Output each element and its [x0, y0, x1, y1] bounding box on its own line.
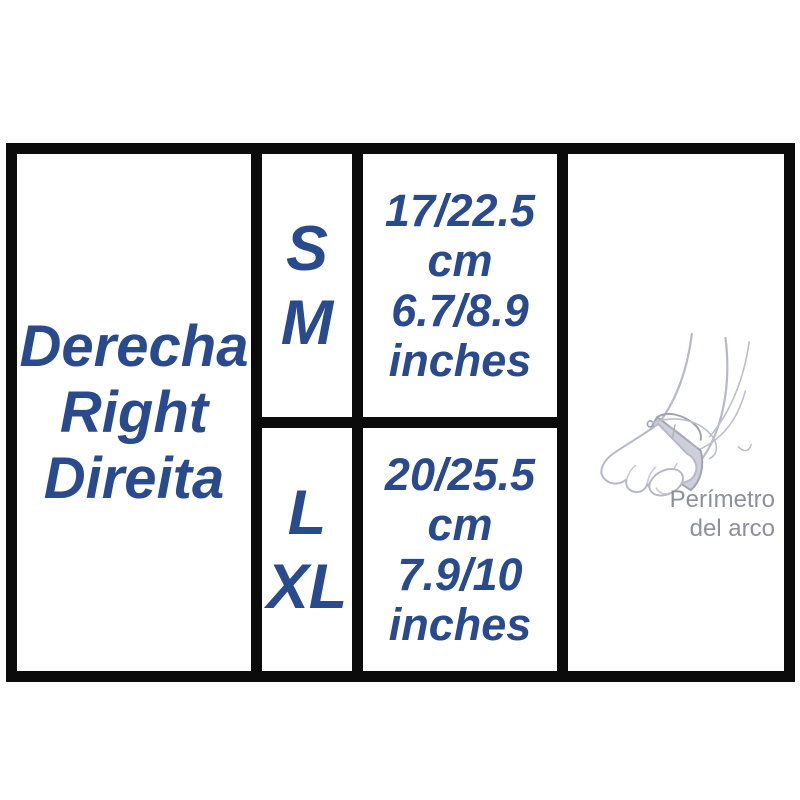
measurement-cm-range-sm: 17/22.5 — [385, 186, 535, 236]
side-label-cell: Derecha Right Direita — [17, 154, 251, 671]
size-letter-l: L — [288, 476, 326, 550]
foot-arch-brace-icon — [594, 330, 764, 506]
measurement-inch-range-lxl: 7.9/10 — [397, 550, 522, 600]
measurement-cm-range-lxl: 20/25.5 — [385, 450, 535, 500]
size-cell-s-m: S M — [262, 154, 352, 417]
size-chart-page: Derecha Right Direita S M 17/22.5 cm 6.7… — [0, 0, 800, 800]
size-letter-m: M — [281, 286, 333, 360]
side-label-spanish: Derecha — [20, 314, 249, 380]
caption-line-2: del arco — [670, 514, 775, 543]
measurement-cell-l-xl: 20/25.5 cm 7.9/10 inches — [363, 428, 557, 671]
size-letter-xl: XL — [267, 550, 348, 624]
caption-line-1: Perímetro — [670, 485, 775, 514]
side-label-english: Right — [60, 380, 208, 446]
measurement-inch-range-sm: 6.7/8.9 — [391, 286, 529, 336]
measurement-cm-unit-sm: cm — [427, 236, 492, 286]
measurement-cell-s-m: 17/22.5 cm 6.7/8.9 inches — [363, 154, 557, 417]
size-chart-table: Derecha Right Direita S M 17/22.5 cm 6.7… — [6, 143, 795, 682]
measurement-inch-unit-sm: inches — [389, 336, 532, 386]
size-letter-s: S — [286, 212, 328, 286]
measurement-cm-unit-lxl: cm — [427, 500, 492, 550]
measurement-inch-unit-lxl: inches — [389, 600, 532, 650]
size-cell-l-xl: L XL — [262, 428, 352, 671]
illustration-cell: Perímetro del arco — [568, 154, 784, 671]
side-label-portuguese: Direita — [44, 446, 225, 512]
illustration-caption: Perímetro del arco — [670, 485, 775, 543]
